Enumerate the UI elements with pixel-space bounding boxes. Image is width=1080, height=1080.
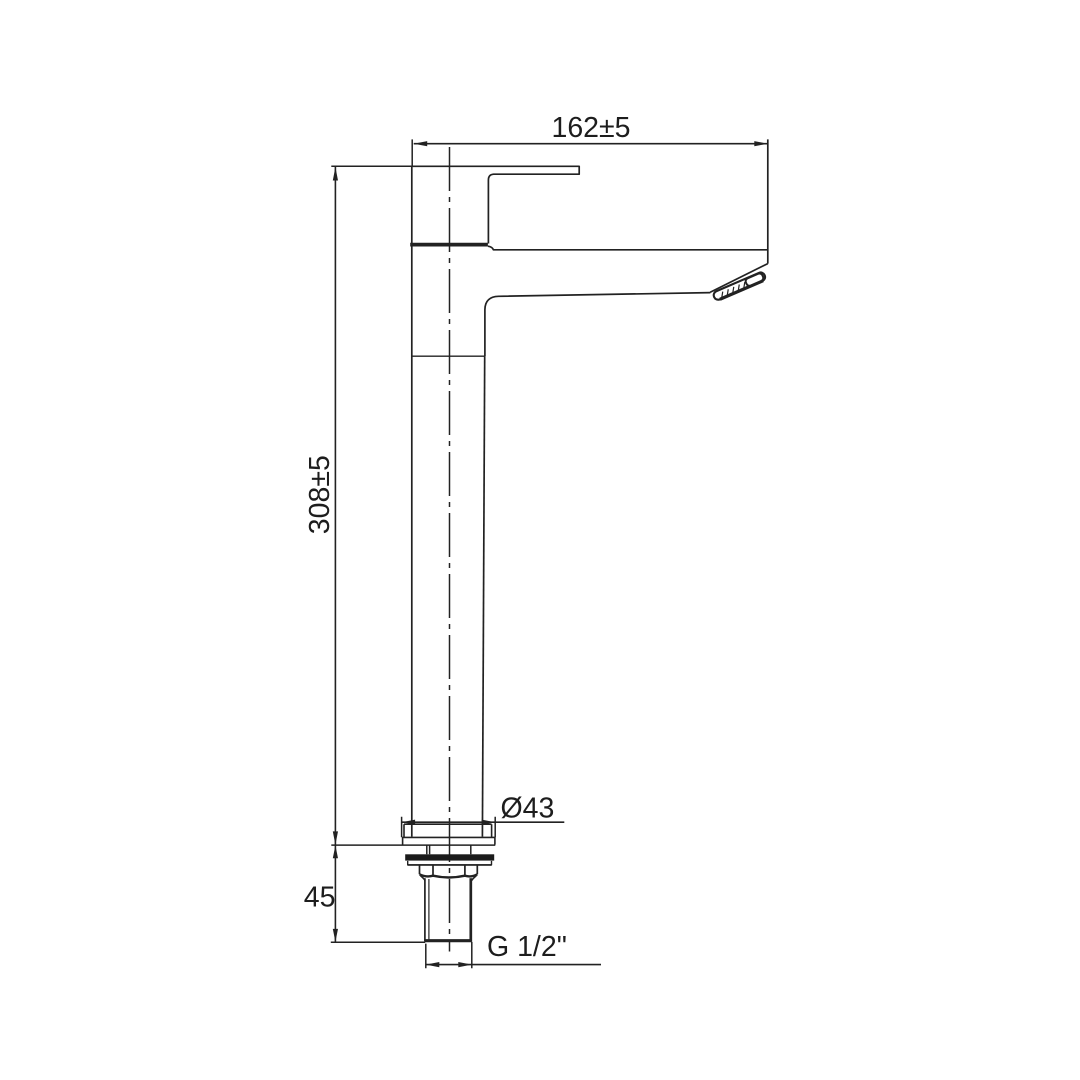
svg-text:308±5: 308±5 <box>304 455 336 534</box>
svg-text:45: 45 <box>304 882 336 914</box>
svg-text:Ø43: Ø43 <box>501 793 555 825</box>
svg-text:162±5: 162±5 <box>551 112 630 144</box>
svg-text:G 1/2": G 1/2" <box>487 931 567 963</box>
